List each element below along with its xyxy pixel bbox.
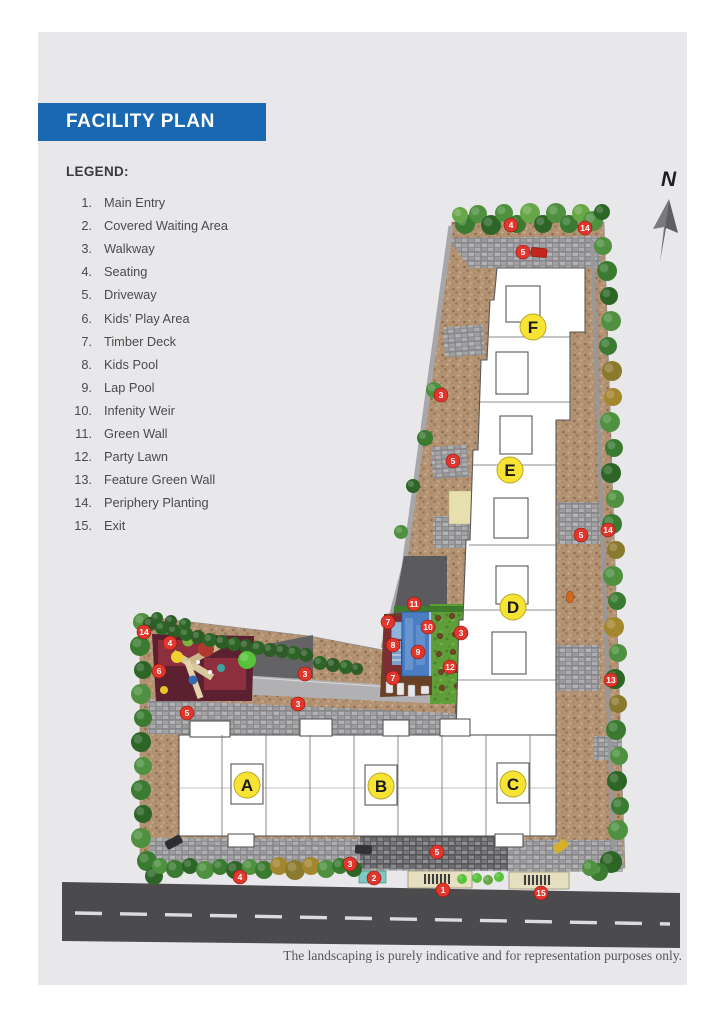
legend-title: LEGEND: xyxy=(66,164,286,179)
legend-item-label: Kids Pool xyxy=(104,357,158,372)
legend-item-number: 13. xyxy=(66,472,92,487)
svg-text:15: 15 xyxy=(536,888,546,898)
legend-item: 6.Kids’ Play Area xyxy=(66,306,286,329)
tree xyxy=(212,859,228,875)
tree xyxy=(179,618,191,630)
tree xyxy=(339,660,353,674)
svg-text:5: 5 xyxy=(451,456,456,466)
title-bar: FACILITY PLAN xyxy=(38,103,266,141)
tree xyxy=(602,361,622,381)
legend-item: 11.Green Wall xyxy=(66,422,286,445)
svg-text:8: 8 xyxy=(391,640,396,650)
svg-text:5: 5 xyxy=(579,530,584,540)
svg-text:C: C xyxy=(507,775,519,794)
tree xyxy=(606,490,624,508)
plan-marker-4: 4 xyxy=(504,218,518,232)
svg-text:5: 5 xyxy=(435,847,440,857)
legend-item: 3.Walkway xyxy=(66,237,286,260)
legend-item-label: Kids’ Play Area xyxy=(104,311,190,326)
plan-marker-3: 3 xyxy=(434,388,448,402)
plan-marker-2: 2 xyxy=(367,871,381,885)
tree xyxy=(472,873,482,883)
tree xyxy=(134,805,152,823)
tree xyxy=(131,780,151,800)
tree xyxy=(227,637,241,651)
tree xyxy=(604,617,624,637)
legend-item-number: 8. xyxy=(66,357,92,372)
legend-item: 10.Infenity Weir xyxy=(66,399,286,422)
svg-text:F: F xyxy=(528,318,538,337)
svg-text:5: 5 xyxy=(521,247,526,257)
plan-marker-6: 6 xyxy=(152,664,166,678)
plan-marker-4: 4 xyxy=(233,870,247,884)
tree xyxy=(609,644,627,662)
plan-marker-5: 5 xyxy=(574,528,588,542)
building-label-F: F xyxy=(520,314,546,340)
svg-text:E: E xyxy=(504,461,515,480)
tree xyxy=(607,541,625,559)
car-red xyxy=(531,247,548,258)
legend-item-label: Walkway xyxy=(104,241,155,256)
legend-item: 9.Lap Pool xyxy=(66,376,286,399)
tree xyxy=(594,237,612,255)
tree xyxy=(196,861,214,879)
svg-text:2: 2 xyxy=(372,873,377,883)
tree xyxy=(182,858,198,874)
plan-marker-10: 10 xyxy=(421,620,435,634)
tree xyxy=(299,648,313,662)
tree xyxy=(191,630,205,644)
svg-text:4: 4 xyxy=(509,220,514,230)
legend-item-label: Seating xyxy=(104,264,147,279)
tree xyxy=(134,661,152,679)
tree xyxy=(317,860,335,878)
plan-marker-9: 9 xyxy=(411,645,425,659)
plan-marker-15: 15 xyxy=(534,886,548,900)
legend-item-label: Green Wall xyxy=(104,426,168,441)
plan-marker-5: 5 xyxy=(516,245,530,259)
svg-text:D: D xyxy=(507,598,519,617)
tree xyxy=(134,709,152,727)
tree xyxy=(494,872,504,882)
legend-item-number: 10. xyxy=(66,403,92,418)
tree xyxy=(165,615,177,627)
plan-marker-8: 8 xyxy=(386,638,400,652)
tree xyxy=(263,643,277,657)
tree xyxy=(457,874,467,884)
svg-text:5: 5 xyxy=(185,708,190,718)
svg-text:14: 14 xyxy=(603,525,613,535)
legend-item-number: 2. xyxy=(66,218,92,233)
building-label-C: C xyxy=(500,771,526,797)
court-area xyxy=(449,491,472,524)
tree xyxy=(394,525,408,539)
svg-text:10: 10 xyxy=(423,622,433,632)
tree xyxy=(131,828,151,848)
plan-marker-14: 14 xyxy=(137,625,151,639)
svg-text:7: 7 xyxy=(386,617,391,627)
tree xyxy=(134,757,152,775)
car-dark-middle xyxy=(355,845,372,855)
tree xyxy=(605,439,623,457)
plan-marker-11: 11 xyxy=(407,597,421,611)
legend-item: 4.Seating xyxy=(66,260,286,283)
north-arrow-icon xyxy=(640,192,690,277)
svg-text:B: B xyxy=(375,777,387,796)
svg-text:A: A xyxy=(241,776,253,795)
tree xyxy=(582,860,598,876)
legend-item-label: Covered Waiting Area xyxy=(104,218,228,233)
plan-marker-14: 14 xyxy=(601,523,615,537)
tree xyxy=(351,663,363,675)
legend-item-label: Driveway xyxy=(104,287,157,302)
building-label-B: B xyxy=(368,773,394,799)
tree xyxy=(215,635,229,649)
tree xyxy=(606,720,626,740)
tree xyxy=(313,656,327,670)
tree xyxy=(302,857,320,875)
plan-marker-4: 4 xyxy=(163,636,177,650)
legend-item-label: Feature Green Wall xyxy=(104,472,215,487)
legend-item-number: 15. xyxy=(66,518,92,533)
legend-item-label: Main Entry xyxy=(104,195,165,210)
svg-text:4: 4 xyxy=(238,872,243,882)
tree xyxy=(239,639,253,653)
legend-item-number: 3. xyxy=(66,241,92,256)
svg-text:3: 3 xyxy=(348,859,353,869)
tree xyxy=(599,337,617,355)
person-figure xyxy=(567,591,574,603)
tree xyxy=(600,412,620,432)
plan-marker-3: 3 xyxy=(291,697,305,711)
tree xyxy=(603,566,623,586)
tree xyxy=(287,646,301,660)
plan-marker-7: 7 xyxy=(386,671,400,685)
plan-marker-5: 5 xyxy=(180,706,194,720)
svg-text:3: 3 xyxy=(296,699,301,709)
disclaimer-text: The landscaping is purely indicative and… xyxy=(283,948,682,964)
legend-item: 5.Driveway xyxy=(66,283,286,306)
tree xyxy=(604,388,622,406)
legend-item: 8.Kids Pool xyxy=(66,353,286,376)
plan-marker-14: 14 xyxy=(578,221,592,235)
tree xyxy=(275,644,289,658)
plan-marker-3: 3 xyxy=(454,626,468,640)
tree xyxy=(131,732,151,752)
legend-item: 13.Feature Green Wall xyxy=(66,468,286,491)
tree xyxy=(452,207,468,223)
legend-item: 15.Exit xyxy=(66,514,286,537)
building-label-D: D xyxy=(500,594,526,620)
svg-text:11: 11 xyxy=(410,599,419,609)
plan-marker-13: 13 xyxy=(604,673,618,687)
svg-text:7: 7 xyxy=(391,673,396,683)
tree xyxy=(608,820,628,840)
tree xyxy=(152,858,168,874)
svg-text:3: 3 xyxy=(459,628,464,638)
building-label-A: A xyxy=(234,772,260,798)
legend-list: 1.Main Entry2.Covered Waiting Area3.Walk… xyxy=(66,191,286,537)
legend-item-label: Timber Deck xyxy=(104,334,176,349)
tree xyxy=(285,860,305,880)
facility-plan-page: 414535145131171089312714463355342115 ABC… xyxy=(0,0,725,1024)
legend-item: 12.Party Lawn xyxy=(66,445,286,468)
legend-item-number: 5. xyxy=(66,287,92,302)
legend-item-label: Party Lawn xyxy=(104,449,168,464)
tree xyxy=(601,463,621,483)
plan-marker-12: 12 xyxy=(443,660,457,674)
svg-text:3: 3 xyxy=(439,390,444,400)
svg-text:1: 1 xyxy=(441,885,446,895)
svg-text:12: 12 xyxy=(445,662,455,672)
legend-item: 2.Covered Waiting Area xyxy=(66,214,286,237)
legend-item-label: Infenity Weir xyxy=(104,403,175,418)
tree xyxy=(608,592,626,610)
plan-marker-7: 7 xyxy=(381,615,395,629)
svg-text:4: 4 xyxy=(168,638,173,648)
tree xyxy=(166,860,184,878)
plan-marker-3: 3 xyxy=(343,857,357,871)
legend-item-number: 6. xyxy=(66,311,92,326)
legend-item: 14.Periphery Planting xyxy=(66,491,286,514)
svg-text:14: 14 xyxy=(139,627,149,637)
plan-marker-3: 3 xyxy=(298,667,312,681)
tree xyxy=(601,311,621,331)
green-wall xyxy=(394,606,464,612)
tree xyxy=(238,651,256,669)
svg-text:3: 3 xyxy=(303,669,308,679)
legend-item: 7.Timber Deck xyxy=(66,330,286,353)
legend-item-label: Exit xyxy=(104,518,125,533)
legend-item-number: 1. xyxy=(66,195,92,210)
plan-marker-1: 1 xyxy=(436,883,450,897)
plan-marker-5: 5 xyxy=(430,845,444,859)
plan-marker-5: 5 xyxy=(446,454,460,468)
legend-item-number: 12. xyxy=(66,449,92,464)
tree xyxy=(609,695,627,713)
legend: LEGEND: 1.Main Entry2.Covered Waiting Ar… xyxy=(66,164,286,537)
tree xyxy=(607,771,627,791)
legend-item-number: 9. xyxy=(66,380,92,395)
legend-item: 1.Main Entry xyxy=(66,191,286,214)
tree xyxy=(203,633,217,647)
legend-item-number: 7. xyxy=(66,334,92,349)
svg-text:6: 6 xyxy=(157,666,162,676)
legend-item-label: Periphery Planting xyxy=(104,495,209,510)
tree xyxy=(417,430,433,446)
tree xyxy=(600,287,618,305)
tree xyxy=(251,641,265,655)
page-title: FACILITY PLAN xyxy=(66,111,215,133)
svg-text:14: 14 xyxy=(580,223,590,233)
tree xyxy=(594,204,610,220)
tree xyxy=(406,479,420,493)
svg-text:13: 13 xyxy=(606,675,616,685)
tree xyxy=(483,875,493,885)
tree xyxy=(326,658,340,672)
legend-item-number: 4. xyxy=(66,264,92,279)
tree xyxy=(130,636,150,656)
building-label-E: E xyxy=(497,457,523,483)
tree xyxy=(131,684,151,704)
tree xyxy=(597,261,617,281)
legend-item-number: 14. xyxy=(66,495,92,510)
road xyxy=(62,882,680,948)
svg-text:9: 9 xyxy=(416,647,421,657)
north-label: N xyxy=(661,168,676,192)
legend-item-label: Lap Pool xyxy=(104,380,155,395)
legend-item-number: 11. xyxy=(66,426,92,441)
tree xyxy=(611,797,629,815)
tree xyxy=(151,612,163,624)
tree xyxy=(610,747,628,765)
